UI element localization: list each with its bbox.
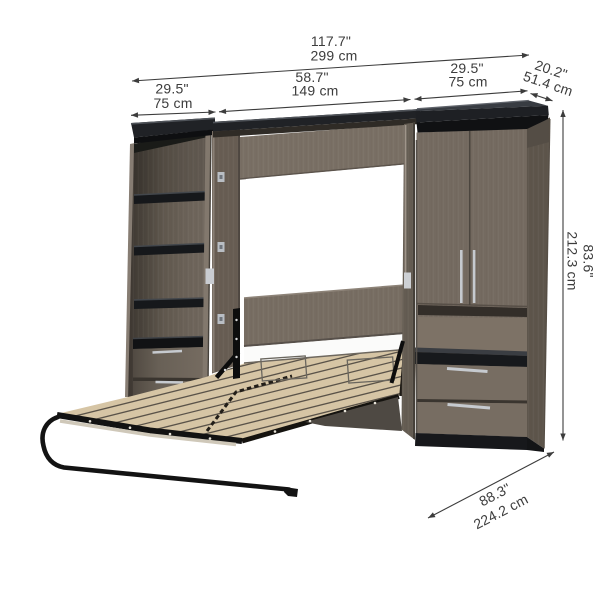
svg-text:75 cm: 75 cm xyxy=(448,74,487,90)
svg-text:149 cm: 149 cm xyxy=(291,83,338,99)
svg-text:212.3 cm: 212.3 cm xyxy=(565,231,581,290)
svg-text:83.6": 83.6" xyxy=(581,244,597,277)
svg-text:75 cm: 75 cm xyxy=(153,95,192,111)
svg-text:299 cm: 299 cm xyxy=(310,48,357,64)
